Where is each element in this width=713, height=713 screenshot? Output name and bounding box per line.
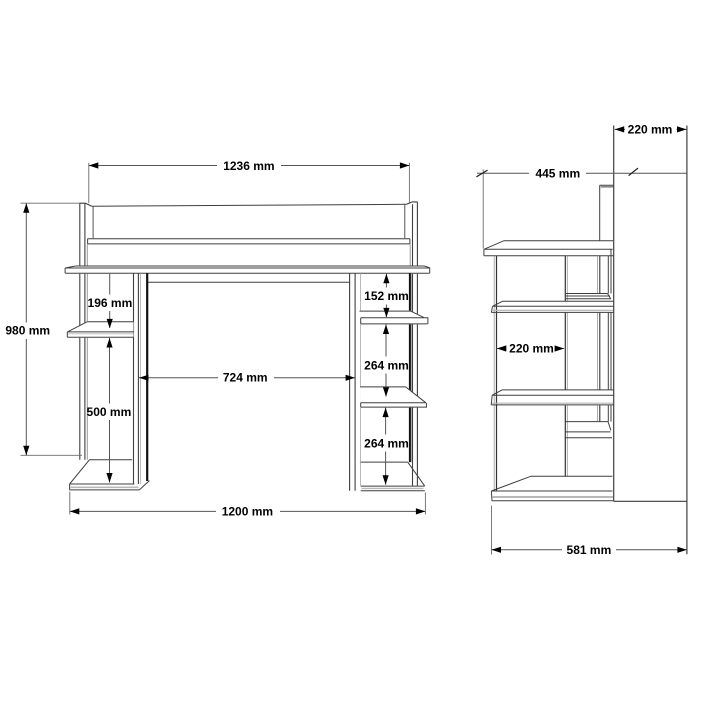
svg-text:264 mm: 264 mm — [364, 358, 409, 372]
svg-text:196 mm: 196 mm — [88, 296, 133, 310]
svg-text:445 mm: 445 mm — [535, 166, 580, 180]
svg-text:500 mm: 500 mm — [87, 405, 132, 419]
svg-text:1200 mm: 1200 mm — [222, 504, 273, 518]
svg-text:264 mm: 264 mm — [364, 437, 409, 451]
svg-text:1236 mm: 1236 mm — [223, 159, 274, 173]
svg-text:220 mm: 220 mm — [509, 342, 554, 356]
svg-text:152 mm: 152 mm — [364, 289, 409, 303]
svg-text:581 mm: 581 mm — [567, 543, 612, 557]
svg-text:220 mm: 220 mm — [628, 122, 673, 136]
svg-text:724 mm: 724 mm — [223, 371, 268, 385]
svg-text:980 mm: 980 mm — [5, 324, 50, 338]
